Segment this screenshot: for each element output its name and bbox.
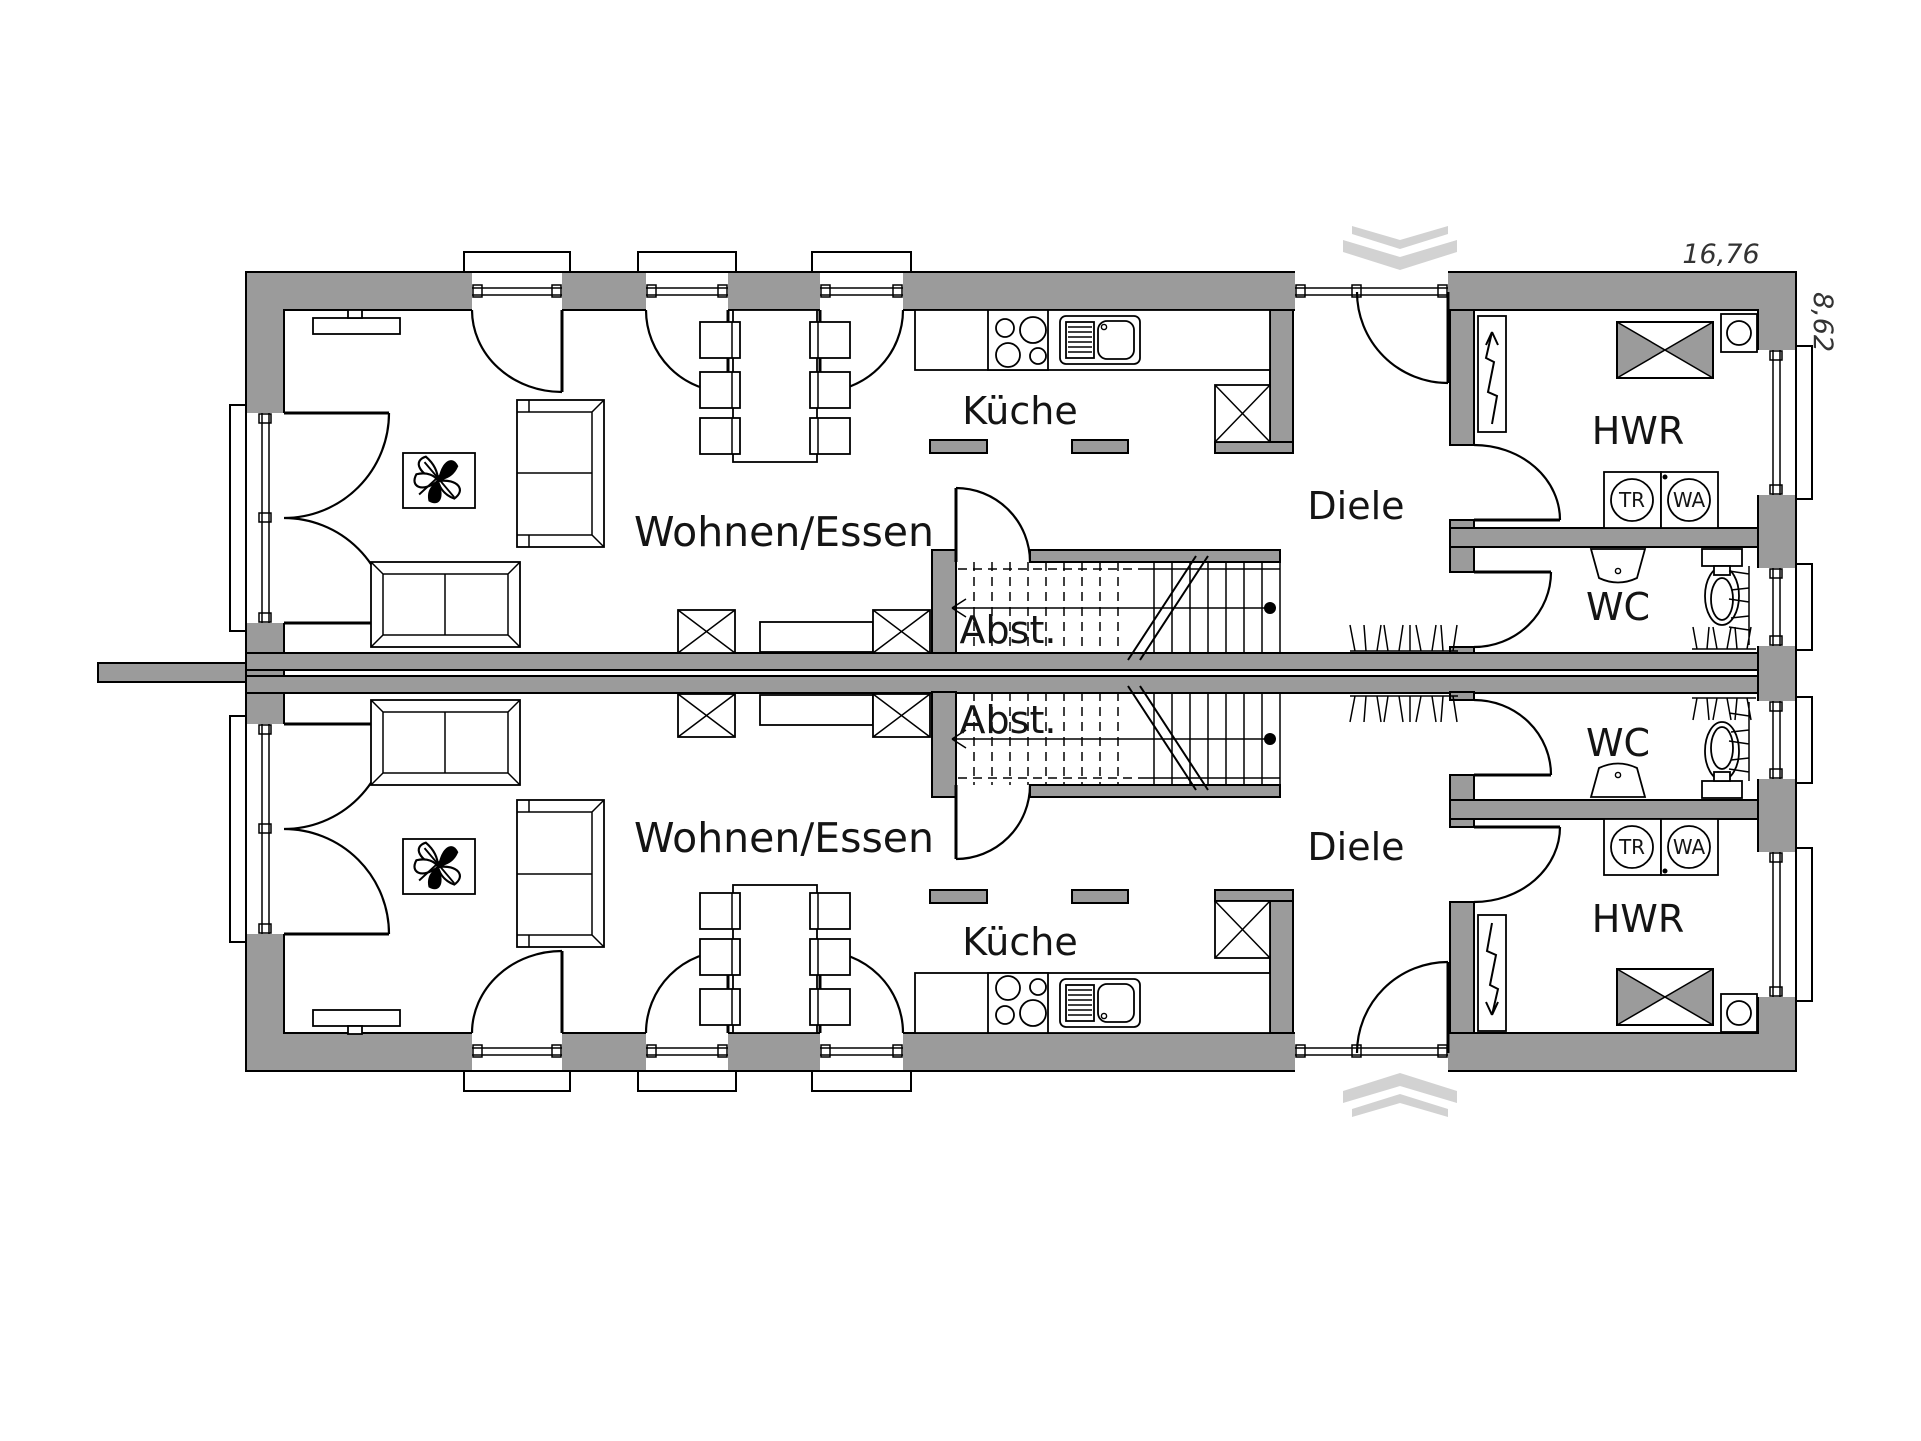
terrace-door — [472, 951, 562, 1033]
dining-chair — [700, 893, 740, 929]
stove-icon — [988, 310, 1048, 370]
entrance-marker-top — [1343, 226, 1457, 270]
boiler-icon — [1721, 994, 1757, 1032]
side-table-crossed — [873, 694, 930, 737]
sink-icon — [1060, 979, 1140, 1027]
room-label-storage-top: Abst. — [960, 608, 1057, 652]
room-label-kitchen-bottom: Küche — [962, 920, 1077, 964]
electrical-panel-icon — [1478, 915, 1506, 1031]
side-table-crossed — [678, 694, 735, 737]
stair-walk-start — [1264, 602, 1276, 614]
dryer-icon: TR — [1604, 819, 1661, 875]
lowboard — [760, 695, 873, 725]
dryer-icon: TR — [1604, 472, 1661, 528]
dining-chair — [700, 939, 740, 975]
sofa-small — [371, 700, 520, 785]
wc-door-top — [1474, 572, 1551, 647]
floor-plan-drawing: TR WA TR — [0, 0, 1921, 1441]
window-frames — [230, 252, 1812, 1091]
washer-icon: WA — [1661, 472, 1718, 528]
dining-chair — [700, 372, 740, 408]
room-label-wc-bottom: WC — [1586, 721, 1650, 765]
dining-chair — [810, 372, 850, 408]
dining-group — [700, 310, 850, 462]
sink-icon — [1060, 316, 1140, 364]
room-label-living-top: Wohnen/Essen — [634, 508, 934, 556]
washer-label: WA — [1673, 488, 1706, 512]
coffee-table — [403, 453, 475, 508]
washer-label: WA — [1673, 835, 1706, 859]
lowboard — [760, 622, 873, 652]
dimension-depth: 8,62 — [1807, 292, 1838, 352]
dining-chair — [810, 418, 850, 454]
party-wall-leaf-bottom — [246, 676, 1758, 693]
chevron-icon — [1352, 226, 1448, 249]
party-wall-leaf-top — [246, 653, 1758, 670]
room-label-utility-bottom: HWR — [1592, 897, 1685, 941]
sofa-large — [517, 400, 604, 547]
duct-shaft-icon — [1215, 385, 1270, 442]
dryer-label: TR — [1618, 488, 1645, 512]
utility-door-top — [1474, 445, 1560, 520]
storage-door-bottom — [956, 785, 1030, 859]
dining-chair — [700, 322, 740, 358]
room-label-utility-top: HWR — [1592, 409, 1685, 453]
dining-table — [733, 885, 817, 1033]
chimney-shaft-icon — [1617, 322, 1713, 378]
sideboard — [313, 310, 400, 334]
room-label-kitchen-top: Küche — [962, 389, 1077, 433]
washbasin-icon — [1591, 764, 1645, 798]
radiator-icon-hall-bottom — [1350, 696, 1458, 722]
duct-shaft-icon — [1215, 901, 1270, 958]
chevron-icon — [1352, 1094, 1448, 1117]
terrace-door — [472, 310, 562, 392]
dryer-label: TR — [1618, 835, 1645, 859]
floor-plan-page: TR WA TR — [0, 0, 1921, 1441]
dining-group — [700, 885, 850, 1033]
room-label-living-bottom: Wohnen/Essen — [634, 814, 934, 862]
room-label-hall-bottom: Diele — [1307, 825, 1404, 869]
washer-icon: WA — [1661, 819, 1718, 875]
dining-chair — [810, 939, 850, 975]
room-label-hall-top: Diele — [1307, 484, 1404, 528]
side-table-crossed — [873, 610, 930, 653]
terrace-privacy-wall — [98, 663, 246, 682]
dining-chair — [700, 418, 740, 454]
living-furniture-bottom — [313, 694, 930, 1034]
room-label-wc-top: WC — [1586, 585, 1650, 629]
living-furniture-top — [313, 310, 930, 653]
coffee-table — [403, 839, 475, 894]
room-label-storage-bottom: Abst. — [960, 698, 1057, 742]
dining-chair — [810, 322, 850, 358]
dining-table — [733, 310, 817, 462]
toilet-icon — [1702, 549, 1742, 625]
stair-walk-start — [1264, 733, 1276, 745]
stair-break-line — [1128, 686, 1208, 790]
storage-door-top — [956, 488, 1030, 562]
sofa-small — [371, 562, 520, 647]
doors — [284, 292, 1560, 1053]
side-table-crossed — [678, 610, 735, 653]
electrical-panel-icon — [1478, 316, 1506, 432]
utility-door-bottom — [1474, 827, 1560, 902]
boiler-icon — [1721, 314, 1757, 352]
dining-chair — [700, 989, 740, 1025]
dining-chair — [810, 893, 850, 929]
sofa-large — [517, 800, 604, 947]
stove-icon — [988, 973, 1048, 1033]
dining-chair — [810, 989, 850, 1025]
entrance-marker-bottom — [1343, 1073, 1457, 1117]
sideboard — [313, 1010, 400, 1034]
wc-door-bottom — [1474, 700, 1551, 775]
radiator-icon-hall-top — [1350, 625, 1458, 651]
chimney-shaft-icon — [1617, 969, 1713, 1025]
dimension-width: 16,76 — [1682, 239, 1759, 270]
washbasin-icon — [1591, 549, 1645, 583]
